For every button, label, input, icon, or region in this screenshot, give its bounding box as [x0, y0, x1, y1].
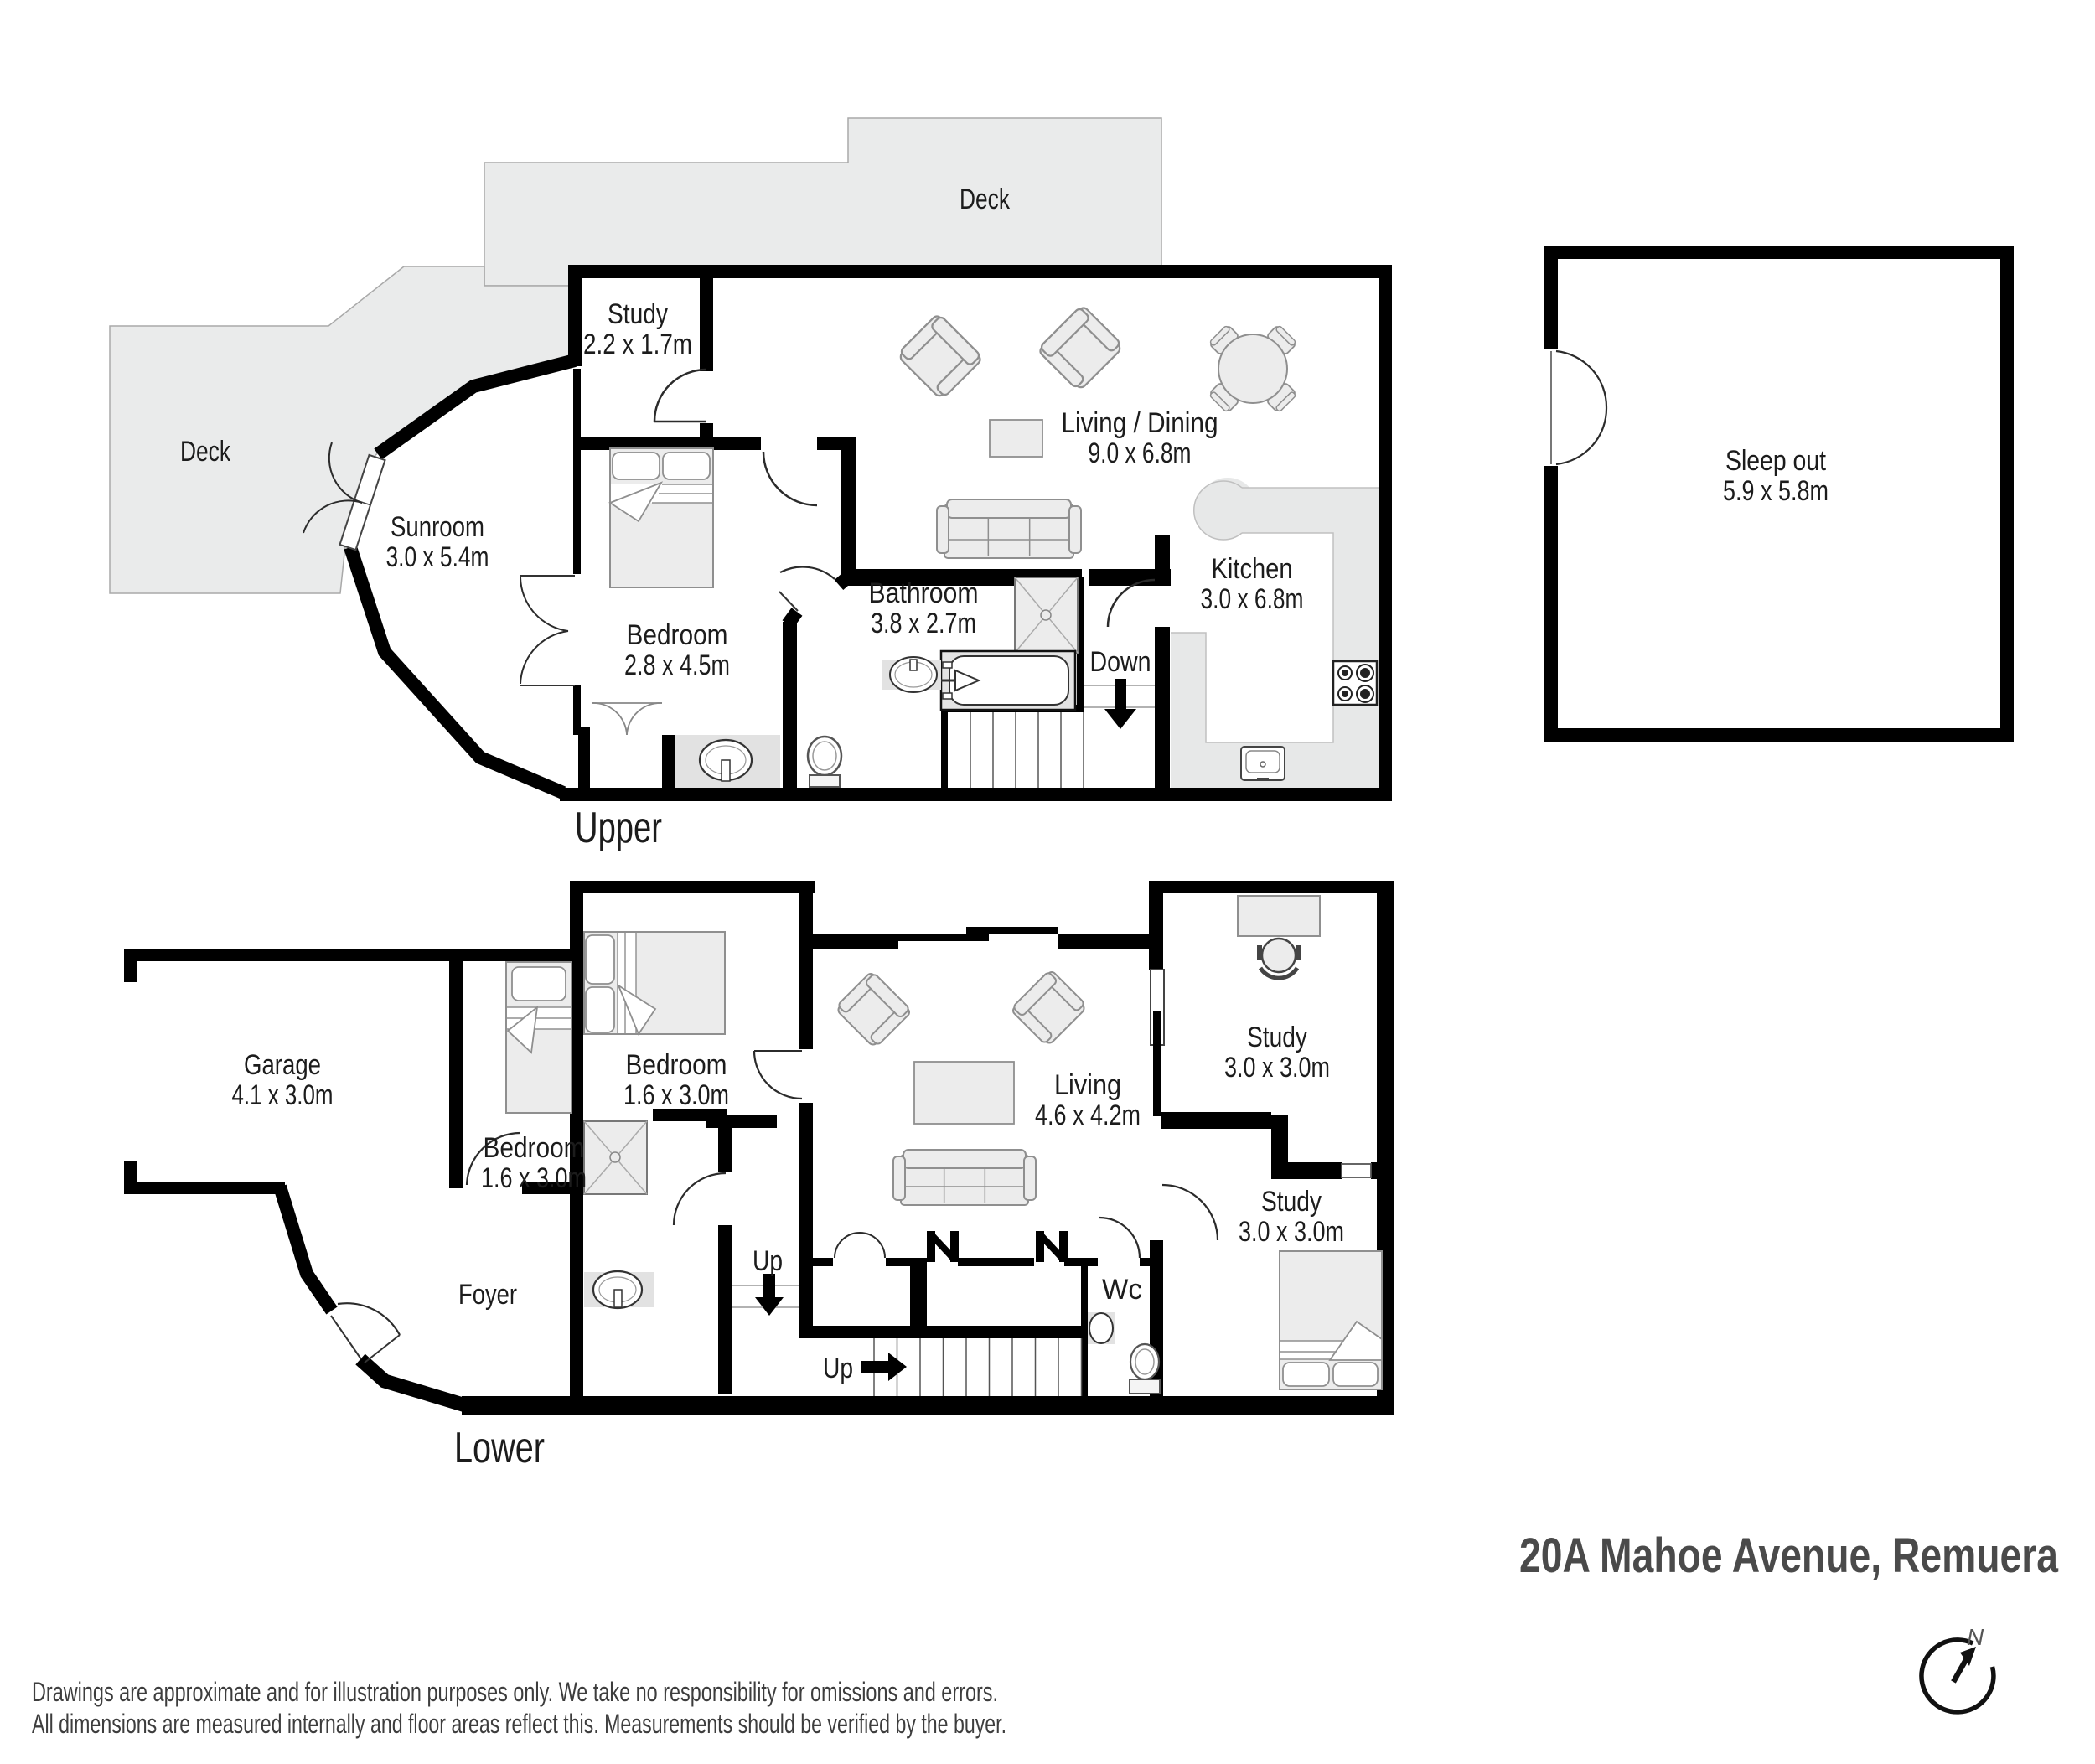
- svg-text:Bathroom: Bathroom: [869, 577, 979, 609]
- svg-text:Living: Living: [1054, 1069, 1121, 1101]
- svg-text:Down: Down: [1090, 646, 1151, 678]
- svg-text:N: N: [1967, 1624, 1984, 1650]
- svg-text:Bedroom: Bedroom: [626, 1049, 727, 1081]
- svg-text:Sleep out: Sleep out: [1725, 445, 1826, 477]
- svg-text:3.0 x 3.0m: 3.0 x 3.0m: [1239, 1216, 1344, 1248]
- svg-text:3.0 x 5.4m: 3.0 x 5.4m: [386, 541, 489, 573]
- svg-text:2.8 x 4.5m: 2.8 x 4.5m: [624, 649, 730, 681]
- svg-text:Upper: Upper: [575, 804, 662, 852]
- svg-text:3.8 x 2.7m: 3.8 x 2.7m: [871, 608, 976, 639]
- svg-text:3.0 x 6.8m: 3.0 x 6.8m: [1201, 583, 1304, 615]
- svg-text:Study: Study: [608, 298, 668, 330]
- svg-text:Bedroom: Bedroom: [627, 619, 728, 651]
- svg-text:All dimensions are measured in: All dimensions are measured internally a…: [32, 1709, 1006, 1739]
- svg-text:Deck: Deck: [180, 436, 231, 468]
- svg-text:Living / Dining: Living / Dining: [1062, 407, 1218, 439]
- svg-text:1.6 x 3.0m: 1.6 x 3.0m: [623, 1079, 729, 1111]
- svg-text:Garage: Garage: [244, 1049, 321, 1081]
- svg-text:2.2 x 1.7m: 2.2 x 1.7m: [583, 328, 692, 360]
- svg-text:Drawings are approximate and f: Drawings are approximate and for illustr…: [32, 1677, 998, 1707]
- svg-text:Study: Study: [1261, 1186, 1322, 1218]
- svg-text:4.6 x 4.2m: 4.6 x 4.2m: [1035, 1099, 1141, 1131]
- svg-text:Bedroom: Bedroom: [484, 1132, 585, 1164]
- svg-text:Sunroom: Sunroom: [391, 511, 484, 543]
- svg-text:Study: Study: [1247, 1022, 1307, 1053]
- svg-text:Wc: Wc: [1102, 1274, 1142, 1306]
- svg-text:Deck: Deck: [960, 184, 1011, 215]
- svg-text:4.1 x 3.0m: 4.1 x 3.0m: [232, 1079, 334, 1111]
- svg-text:Foyer: Foyer: [458, 1279, 517, 1311]
- svg-text:Kitchen: Kitchen: [1212, 553, 1293, 585]
- svg-text:9.0 x 6.8m: 9.0 x 6.8m: [1089, 437, 1192, 469]
- svg-text:20A Mahoe Avenue, Remuera: 20A Mahoe Avenue, Remuera: [1519, 1529, 2059, 1583]
- svg-text:Up: Up: [753, 1245, 783, 1277]
- svg-text:5.9 x 5.8m: 5.9 x 5.8m: [1723, 475, 1829, 507]
- svg-text:3.0 x 3.0m: 3.0 x 3.0m: [1224, 1052, 1330, 1084]
- svg-text:1.6 x 3.0m: 1.6 x 3.0m: [481, 1162, 587, 1194]
- svg-text:Up: Up: [823, 1353, 853, 1384]
- svg-text:Lower: Lower: [454, 1424, 545, 1472]
